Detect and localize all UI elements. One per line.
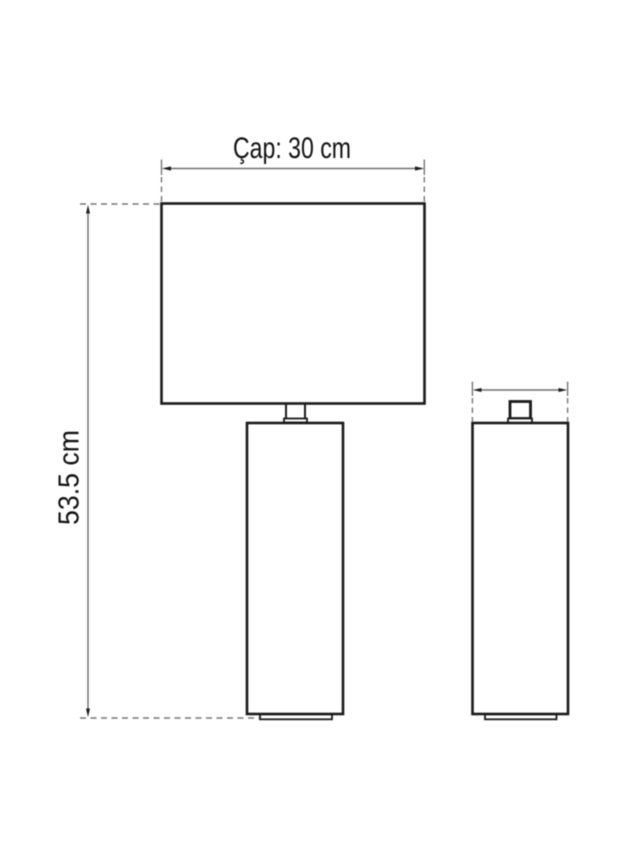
svg-text:Çap: 30 cm: Çap: 30 cm xyxy=(233,132,351,165)
svg-text:53.5 cm: 53.5 cm xyxy=(54,430,86,525)
